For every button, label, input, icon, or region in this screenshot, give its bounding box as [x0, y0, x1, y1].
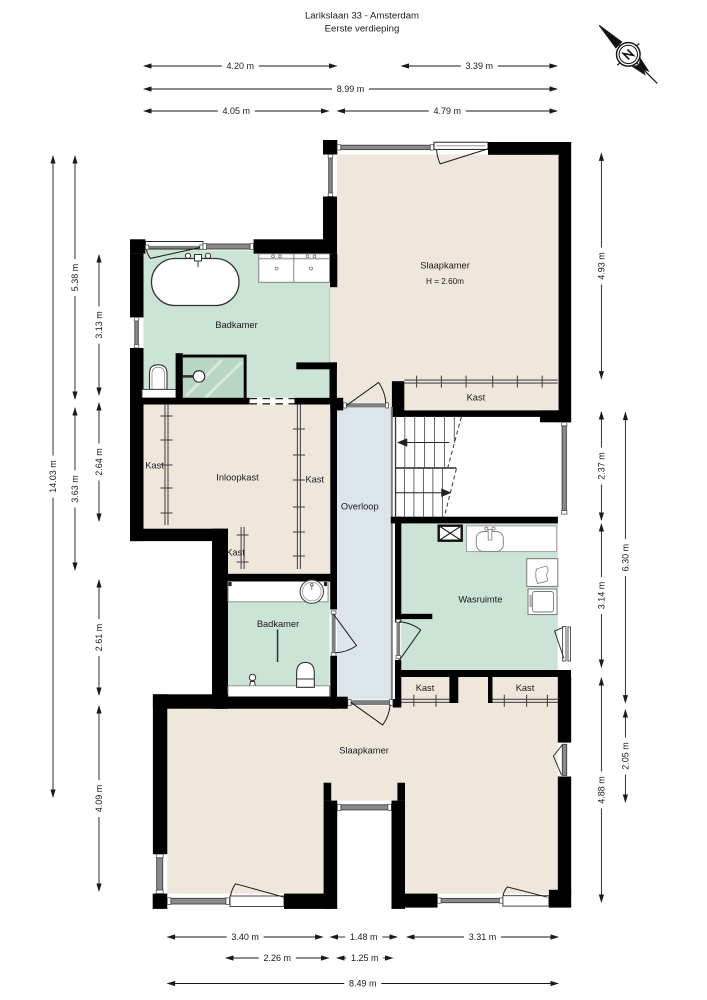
svg-text:Kast: Kast	[305, 475, 324, 485]
svg-text:Eerste verdieping: Eerste verdieping	[325, 24, 400, 35]
svg-text:8.49 m: 8.49 m	[349, 979, 377, 989]
svg-text:4.09 m: 4.09 m	[94, 785, 104, 813]
svg-text:3.40 m: 3.40 m	[231, 932, 259, 942]
svg-text:Wasruimte: Wasruimte	[458, 594, 502, 604]
svg-text:4.79 m: 4.79 m	[433, 106, 461, 116]
svg-text:3.39 m: 3.39 m	[465, 61, 493, 71]
svg-text:Overloop: Overloop	[341, 501, 379, 511]
svg-text:2.05 m: 2.05 m	[621, 742, 631, 770]
svg-text:6.30 m: 6.30 m	[621, 544, 631, 572]
svg-text:2.64 m: 2.64 m	[94, 448, 104, 476]
svg-text:4.93 m: 4.93 m	[597, 252, 607, 280]
svg-text:Inloopkast: Inloopkast	[216, 472, 259, 482]
svg-text:Kast: Kast	[516, 683, 535, 693]
svg-text:Slaapkamer: Slaapkamer	[339, 745, 389, 755]
svg-text:2.37 m: 2.37 m	[597, 452, 607, 480]
svg-text:2.26 m: 2.26 m	[263, 953, 291, 963]
svg-text:4.20 m: 4.20 m	[226, 61, 254, 71]
svg-text:Badkamer: Badkamer	[257, 619, 299, 629]
svg-text:3.63 m: 3.63 m	[70, 475, 80, 503]
svg-text:Kast: Kast	[226, 547, 245, 557]
svg-text:1.48 m: 1.48 m	[350, 932, 378, 942]
svg-text:1.25 m: 1.25 m	[351, 953, 379, 963]
svg-text:3.14 m: 3.14 m	[597, 582, 607, 610]
svg-text:5.38 m: 5.38 m	[70, 264, 80, 292]
svg-text:Kast: Kast	[467, 393, 486, 403]
svg-text:3.31 m: 3.31 m	[469, 932, 497, 942]
svg-text:8.99 m: 8.99 m	[337, 84, 365, 94]
svg-text:H = 2.60m: H = 2.60m	[426, 277, 464, 286]
svg-text:Slaapkamer: Slaapkamer	[420, 261, 470, 271]
svg-text:4.88 m: 4.88 m	[597, 776, 607, 804]
svg-text:Kast: Kast	[416, 683, 435, 693]
svg-text:Kast: Kast	[145, 461, 164, 471]
svg-text:3.13 m: 3.13 m	[94, 311, 104, 339]
svg-text:14.03 m: 14.03 m	[48, 460, 58, 493]
svg-text:Larikslaan 33 - Amsterdam: Larikslaan 33 - Amsterdam	[305, 11, 419, 22]
svg-text:Badkamer: Badkamer	[215, 320, 257, 330]
svg-text:2.61 m: 2.61 m	[94, 624, 104, 652]
svg-text:4.05 m: 4.05 m	[222, 106, 250, 116]
